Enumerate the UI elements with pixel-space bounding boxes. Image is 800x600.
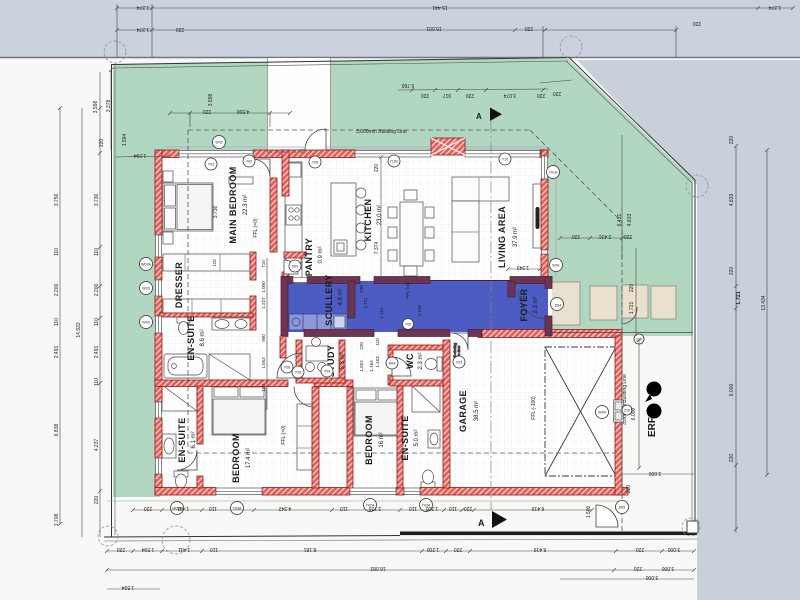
svg-text:220: 220: [99, 139, 105, 148]
svg-text:220: 220: [636, 546, 645, 552]
svg-text:110: 110: [375, 338, 380, 346]
svg-text:900: 900: [261, 334, 266, 342]
svg-text:220: 220: [693, 20, 702, 26]
svg-text:3.000: 3.000: [662, 565, 675, 571]
svg-text:6.431: 6.431: [617, 214, 623, 227]
svg-text:A: A: [478, 518, 485, 528]
svg-text:220: 220: [464, 505, 473, 511]
svg-text:4.833: 4.833: [627, 214, 633, 227]
svg-text:WC: WC: [405, 353, 415, 369]
svg-text:1.594: 1.594: [122, 134, 128, 147]
svg-text:917: 917: [443, 92, 452, 98]
svg-text:4.237: 4.237: [94, 439, 100, 452]
svg-text:1.163: 1.163: [369, 360, 374, 372]
svg-text:Y05: Y05: [312, 161, 318, 165]
svg-text:0.9 m²: 0.9 m²: [318, 246, 324, 263]
svg-text:220: 220: [729, 454, 735, 463]
svg-text:1.115: 1.115: [379, 307, 384, 318]
svg-text:220: 220: [537, 92, 546, 98]
svg-text:16.082: 16.082: [370, 565, 386, 571]
svg-text:220: 220: [359, 285, 364, 293]
svg-text:GARAGE: GARAGE: [458, 390, 468, 432]
svg-text:220: 220: [729, 136, 735, 145]
svg-text:LIVING AREA: LIVING AREA: [497, 206, 507, 268]
svg-text:1.721: 1.721: [363, 297, 368, 309]
svg-text:1.594: 1.594: [122, 584, 135, 590]
svg-text:3.378: 3.378: [106, 100, 112, 113]
svg-text:1.000: 1.000: [261, 281, 266, 293]
svg-text:FFL (=0): FFL (=0): [281, 425, 287, 444]
svg-text:8.6 m²: 8.6 m²: [200, 329, 206, 346]
svg-text:2.3 m²: 2.3 m²: [533, 296, 539, 313]
svg-text:Y10C: Y10C: [390, 160, 399, 164]
svg-text:3.598: 3.598: [93, 101, 99, 114]
svg-text:D04: D04: [389, 362, 396, 366]
svg-text:PANTRY: PANTRY: [304, 238, 314, 276]
svg-text:1.053: 1.053: [261, 357, 266, 369]
svg-text:1.721: 1.721: [736, 291, 742, 305]
svg-text:220: 220: [525, 25, 534, 31]
svg-text:4.590: 4.590: [237, 108, 250, 114]
svg-text:1.411: 1.411: [178, 546, 190, 552]
svg-text:1.200: 1.200: [427, 546, 440, 552]
svg-text:Y09: Y09: [324, 370, 330, 374]
svg-text:1.374: 1.374: [137, 4, 150, 10]
svg-text:110: 110: [210, 546, 218, 552]
svg-text:2.491: 2.491: [54, 346, 60, 359]
svg-text:220: 220: [117, 546, 126, 552]
svg-text:A: A: [476, 112, 482, 121]
svg-text:2.200: 2.200: [54, 284, 60, 297]
svg-text:220: 220: [454, 546, 463, 552]
svg-text:16 m²: 16 m²: [379, 432, 385, 447]
svg-text:17.4 m²: 17.4 m²: [246, 448, 252, 468]
svg-text:8.181: 8.181: [304, 546, 317, 552]
svg-text:1.708: 1.708: [54, 514, 60, 527]
svg-text:220: 220: [203, 108, 212, 114]
svg-text:110: 110: [261, 384, 266, 392]
svg-text:220: 220: [466, 92, 475, 98]
svg-text:110: 110: [54, 248, 60, 256]
svg-text:4.8 m²: 4.8 m²: [338, 288, 344, 305]
svg-text:EN-SUITE: EN-SUITE: [400, 415, 410, 460]
svg-text:DRESSER: DRESSER: [174, 262, 184, 308]
svg-text:4.833: 4.833: [729, 194, 735, 207]
svg-text:Y10: Y10: [502, 158, 508, 162]
svg-text:1.411: 1.411: [177, 505, 189, 511]
svg-text:4.342: 4.342: [279, 505, 292, 511]
svg-text:3.756: 3.756: [54, 194, 60, 207]
svg-text:5.3 m²: 5.3 m²: [340, 352, 346, 369]
svg-text:220: 220: [94, 496, 100, 505]
svg-text:W04: W04: [598, 411, 605, 415]
svg-text:220: 220: [572, 233, 581, 239]
svg-text:2.108: 2.108: [417, 305, 422, 317]
svg-text:2.491: 2.491: [94, 346, 100, 359]
svg-text:110: 110: [94, 378, 100, 386]
svg-text:W03: W03: [142, 321, 149, 325]
svg-text:FFL (=0): FFL (=0): [253, 218, 259, 237]
svg-text:220: 220: [626, 485, 632, 494]
svg-text:W01: W01: [552, 264, 559, 268]
svg-text:1.374: 1.374: [137, 26, 150, 32]
svg-text:220: 220: [729, 267, 735, 276]
svg-text:13.434: 13.434: [761, 295, 767, 311]
svg-text:Y05: Y05: [405, 323, 411, 327]
svg-text:15.441: 15.441: [432, 4, 448, 10]
svg-text:FOYER: FOYER: [519, 288, 529, 321]
svg-text:3.736: 3.736: [94, 194, 100, 207]
svg-text:38.5 m²: 38.5 m²: [474, 401, 480, 421]
svg-text:14.922: 14.922: [76, 322, 82, 338]
svg-text:7.374: 7.374: [374, 242, 380, 255]
svg-text:2.200: 2.200: [94, 284, 100, 297]
svg-text:22.3 m²: 22.3 m²: [243, 195, 249, 215]
svg-text:3.729: 3.729: [369, 505, 382, 511]
svg-text:W02: W02: [215, 141, 222, 145]
svg-text:110: 110: [340, 505, 348, 511]
svg-text:220: 220: [421, 92, 430, 98]
svg-text:220: 220: [374, 164, 380, 173]
svg-text:710: 710: [261, 260, 266, 268]
svg-text:1.721: 1.721: [629, 302, 635, 315]
svg-text:37.9 m²: 37.9 m²: [513, 227, 519, 247]
svg-text:6.000: 6.000: [729, 384, 735, 397]
svg-text:Y01A: Y01A: [549, 171, 558, 175]
svg-text:6.419: 6.419: [532, 505, 545, 511]
svg-text:110: 110: [409, 505, 417, 511]
svg-text:1.594: 1.594: [142, 546, 155, 552]
svg-text:Y02: Y02: [208, 163, 214, 167]
svg-text:Y05: Y05: [295, 371, 301, 375]
svg-text:5.0 m²: 5.0 m²: [414, 429, 420, 446]
svg-text:BEDROOM: BEDROOM: [364, 415, 374, 465]
svg-text:3.000: 3.000: [668, 546, 681, 552]
svg-text:FFL (=0): FFL (=0): [405, 281, 410, 299]
svg-text:15.001: 15.001: [426, 25, 442, 31]
svg-text:2.431: 2.431: [599, 233, 612, 239]
svg-text:FFL (-100): FFL (-100): [531, 396, 537, 420]
svg-text:23.0 m²: 23.0 m²: [377, 205, 383, 225]
svg-text:110: 110: [209, 505, 217, 511]
svg-text:220: 220: [634, 565, 643, 571]
svg-text:110: 110: [94, 318, 100, 326]
svg-text:6.1 m²: 6.1 m²: [191, 431, 197, 448]
svg-text:3.074: 3.074: [504, 92, 517, 98]
svg-text:MAIN BEDROOM: MAIN BEDROOM: [228, 166, 238, 243]
svg-text:1.374: 1.374: [769, 4, 782, 10]
svg-text:EN-SUITE: EN-SUITE: [177, 417, 187, 462]
svg-text:D05: D05: [619, 506, 626, 510]
svg-text:KITCHEN: KITCHEN: [363, 199, 373, 242]
svg-text:220: 220: [624, 409, 630, 413]
svg-text:1.343: 1.343: [517, 264, 530, 270]
svg-text:6.838: 6.838: [54, 424, 60, 437]
svg-text:110: 110: [94, 248, 100, 256]
svg-text:110: 110: [212, 259, 217, 267]
svg-text:3.736: 3.736: [213, 206, 219, 219]
svg-text:220: 220: [176, 26, 185, 32]
svg-text:3.000: 3.000: [646, 574, 659, 580]
svg-text:220: 220: [629, 284, 635, 293]
svg-text:6.000: 6.000: [631, 408, 637, 421]
svg-text:220: 220: [359, 342, 364, 350]
svg-text:1.594: 1.594: [134, 152, 147, 158]
svg-text:D03: D03: [292, 265, 299, 269]
svg-text:Y06: Y06: [284, 366, 290, 370]
svg-text:110: 110: [54, 318, 60, 326]
svg-text:6.419: 6.419: [534, 546, 547, 552]
svg-text:SCULLERY: SCULLERY: [324, 274, 334, 325]
svg-text:1.653: 1.653: [359, 360, 364, 372]
svg-text:220: 220: [144, 505, 153, 511]
svg-text:3.000: 3.000: [649, 470, 662, 476]
svg-text:BEDROOM: BEDROOM: [231, 433, 241, 483]
svg-text:D04: D04: [555, 304, 562, 308]
svg-text:2.3 m²: 2.3 m²: [418, 352, 424, 369]
svg-text:1.163: 1.163: [375, 356, 380, 368]
svg-text:110: 110: [449, 505, 457, 511]
svg-text:5.760: 5.760: [402, 82, 415, 88]
svg-text:3.598: 3.598: [208, 94, 214, 107]
svg-text:EN-SUITE: EN-SUITE: [186, 315, 196, 360]
svg-text:W03A: W03A: [141, 263, 151, 267]
svg-text:Y02: Y02: [246, 160, 252, 164]
svg-text:W03: W03: [142, 287, 149, 291]
svg-text:220: 220: [624, 233, 633, 239]
svg-text:ERF: ERF: [647, 417, 658, 437]
svg-text:Y03: Y03: [456, 361, 462, 365]
svg-text:220: 220: [553, 90, 562, 96]
svg-text:1.500: 1.500: [586, 506, 592, 519]
svg-text:1.200: 1.200: [426, 505, 439, 511]
svg-text:1.227: 1.227: [261, 297, 266, 309]
